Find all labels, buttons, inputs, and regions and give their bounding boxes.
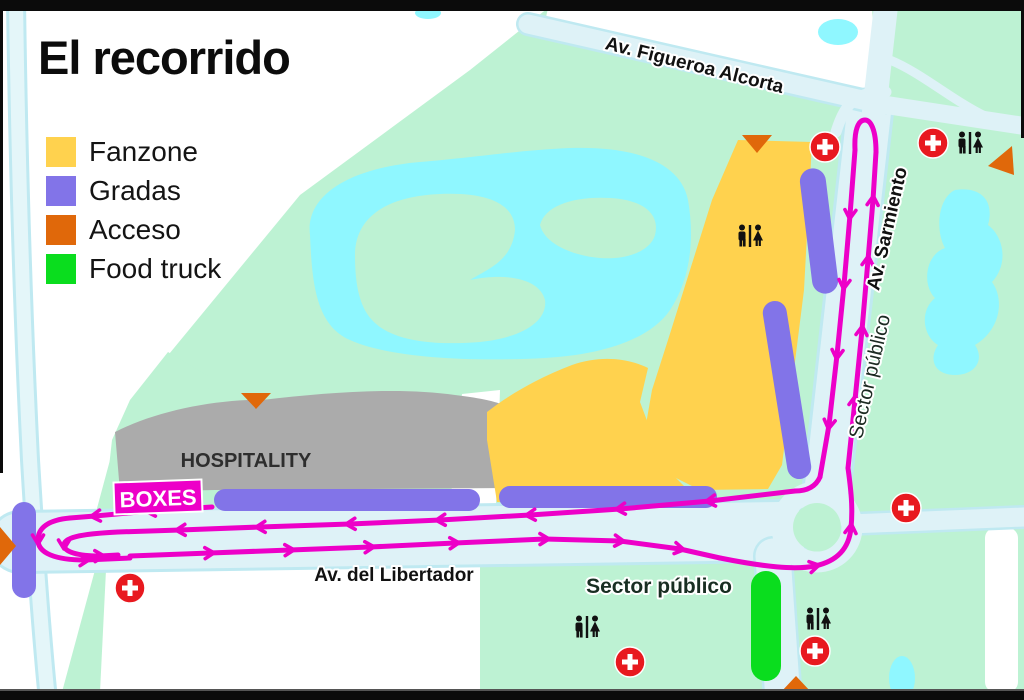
page-title: El recorrido	[38, 30, 290, 85]
first-aid-cross-icon	[615, 647, 645, 677]
legend-item-gradas: Gradas	[46, 176, 221, 206]
fanzone-swatch	[46, 137, 76, 167]
first-aid-cross-icon	[918, 128, 948, 158]
acceso-swatch	[46, 215, 76, 245]
map-canvas: BOXES Av. Figueroa Alcorta Av. Sarmiento…	[0, 0, 1024, 700]
boxes-label: BOXES	[113, 479, 202, 514]
first-aid-cross-icon	[891, 493, 921, 523]
gradas-swatch	[46, 176, 76, 206]
food-truck-strip	[751, 571, 781, 681]
svg-text:BOXES: BOXES	[119, 485, 197, 513]
legend-label: Gradas	[89, 176, 181, 206]
legend-item-acceso: Acceso	[46, 215, 221, 245]
first-aid-cross-icon	[800, 636, 830, 666]
legend-item-fanzone: Fanzone	[46, 137, 221, 167]
hospitality-label: HOSPITALITY	[181, 450, 312, 472]
first-aid-cross-icon	[115, 573, 145, 603]
legend-label: Acceso	[89, 215, 181, 245]
first-aid-cross-icon	[810, 132, 840, 162]
legend-label: Fanzone	[89, 137, 198, 167]
legend: Fanzone Gradas Acceso Food truck	[46, 137, 221, 284]
libertador-label: Av. del Libertador	[314, 565, 474, 586]
route-map: BOXES Av. Figueroa Alcorta Av. Sarmiento…	[0, 0, 1024, 700]
sector-publico-south-label: Sector público	[586, 575, 732, 598]
legend-item-foodtruck: Food truck	[46, 254, 221, 284]
legend-label: Food truck	[89, 254, 221, 284]
food-truck-swatch	[46, 254, 76, 284]
